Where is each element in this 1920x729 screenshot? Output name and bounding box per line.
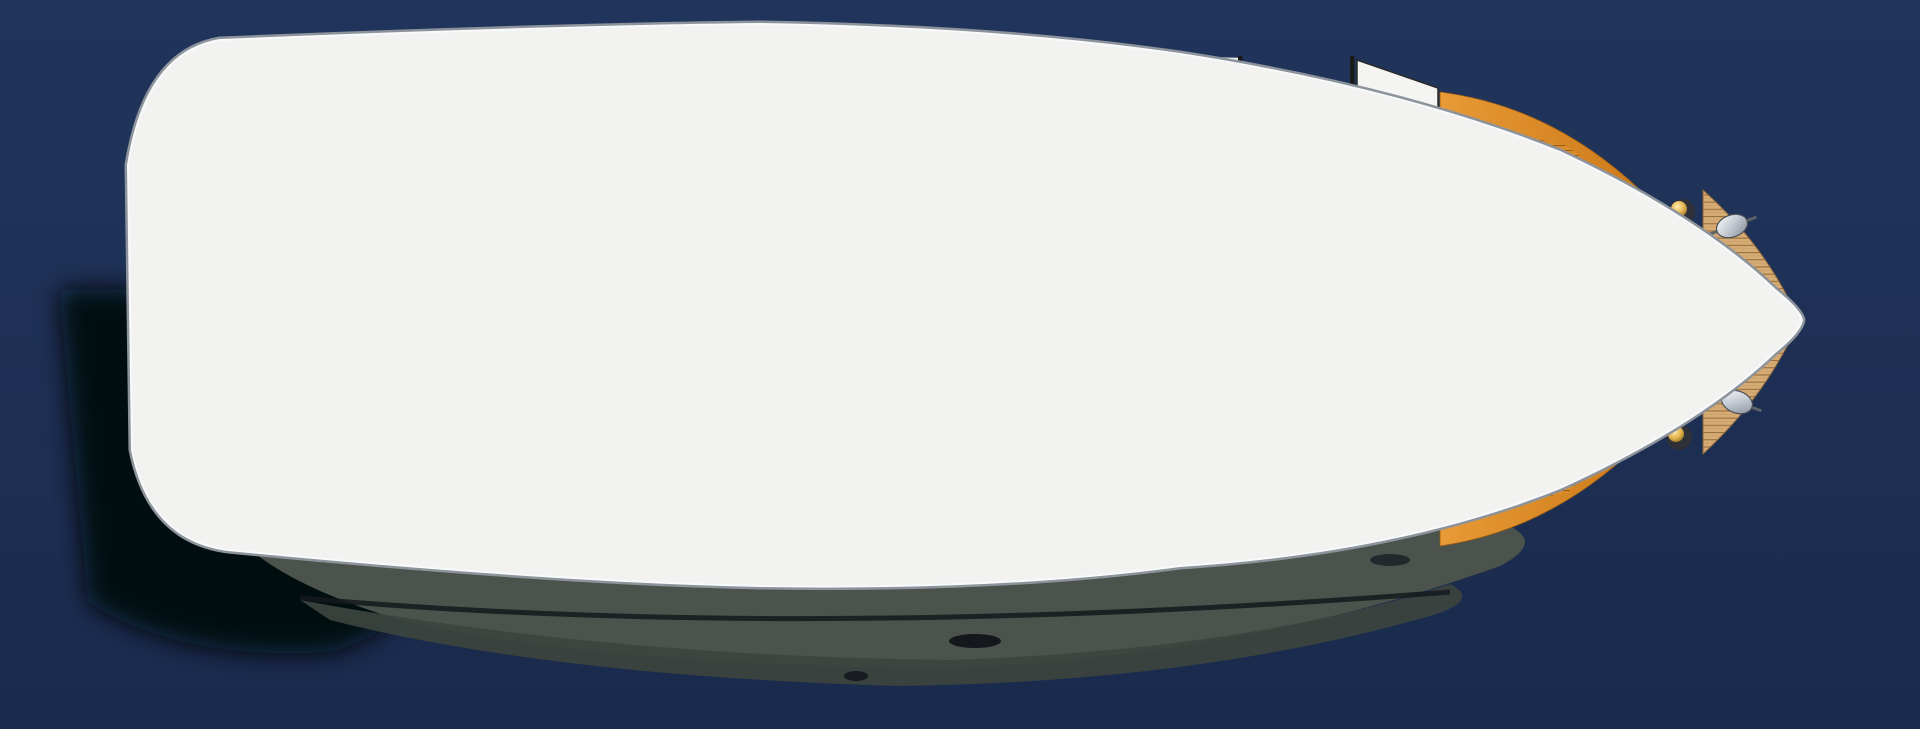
hull-mark-3: [1370, 554, 1410, 566]
hull-mark-2: [844, 671, 868, 681]
yacht-floorplan-image: Water Hull shadow at waterline Main deck…: [0, 0, 1920, 729]
hull-mark-1: [949, 634, 1001, 648]
